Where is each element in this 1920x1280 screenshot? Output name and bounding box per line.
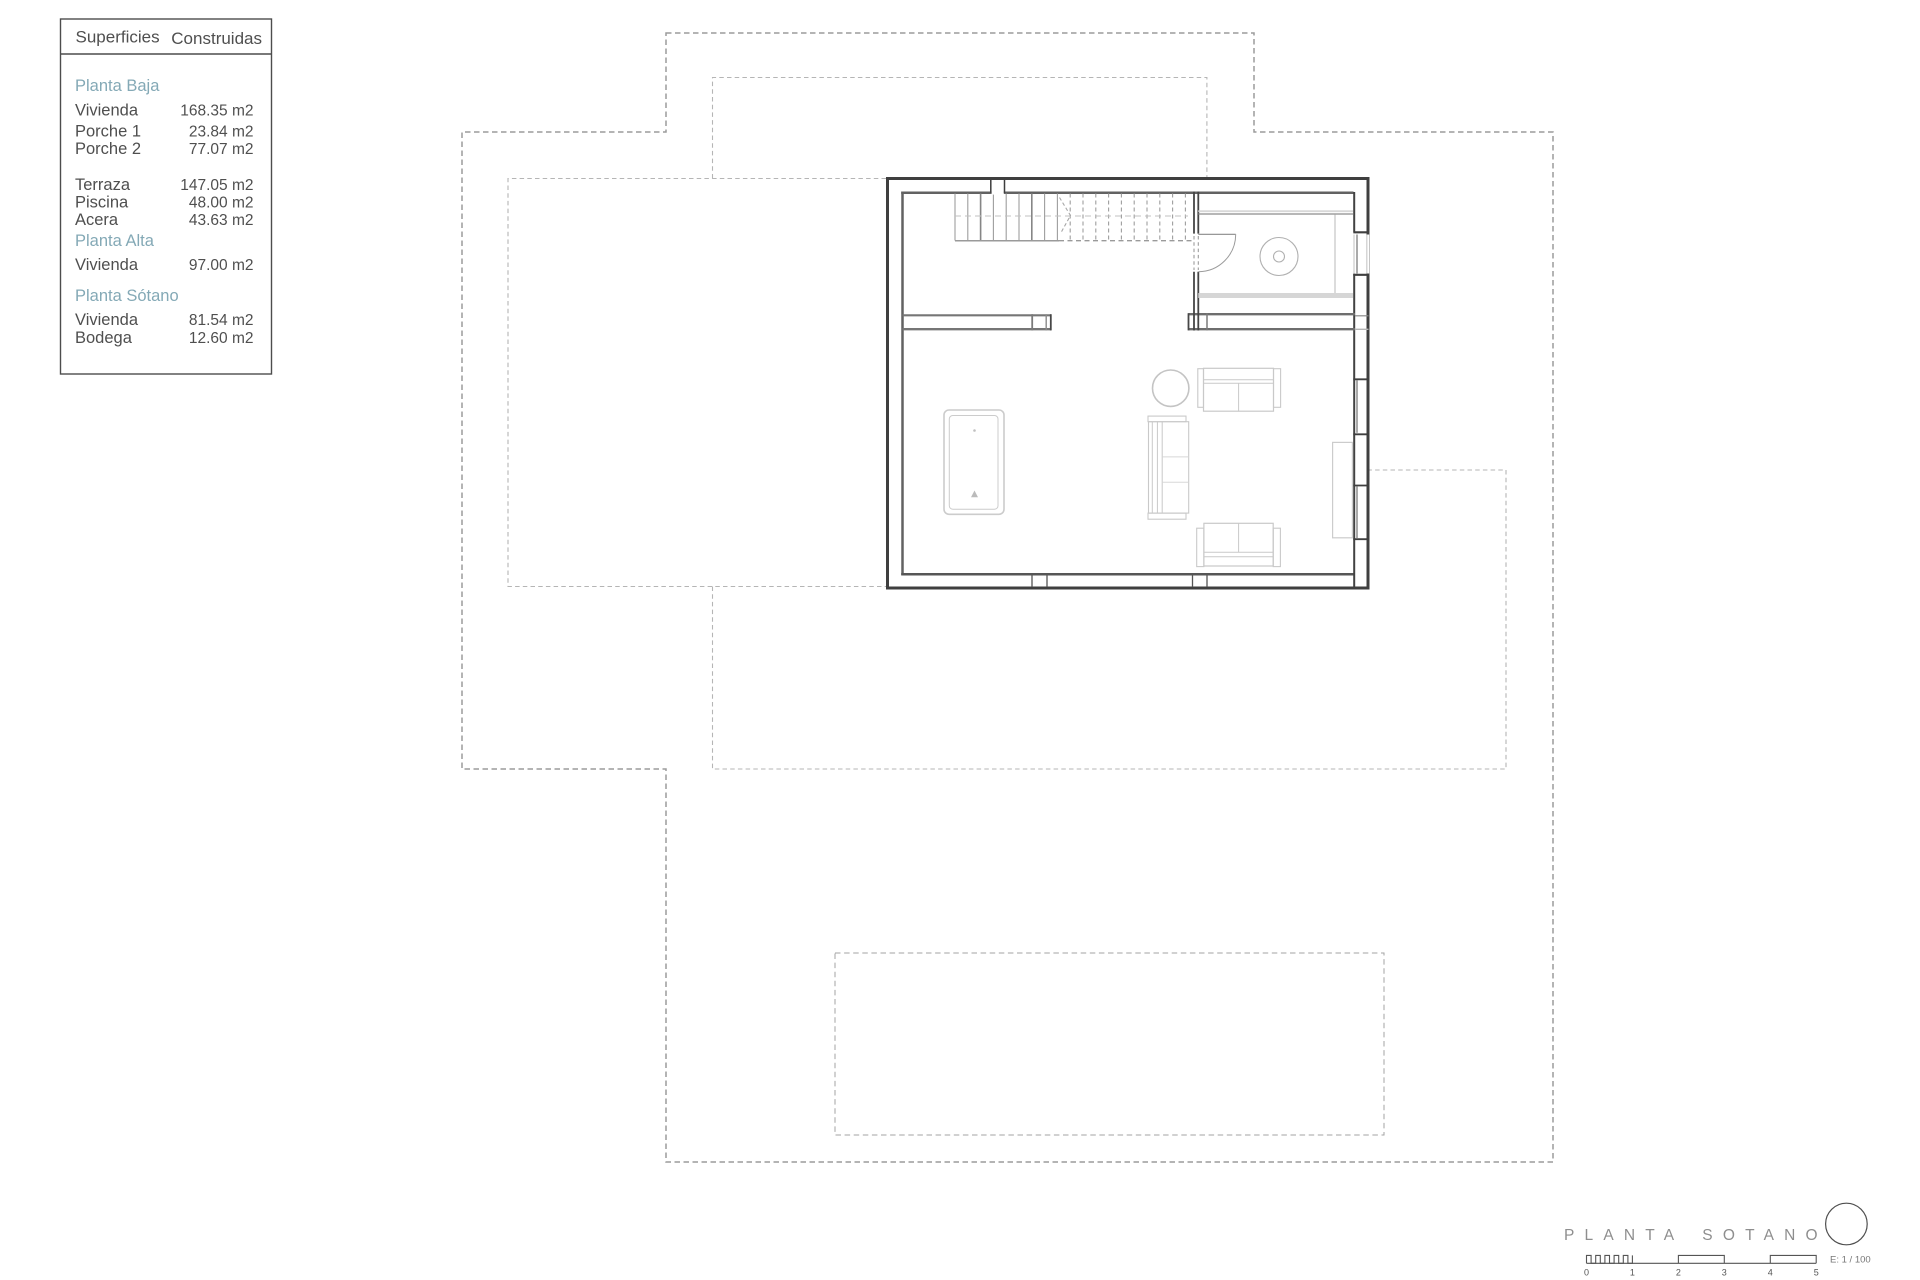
svg-text:81.54 m2: 81.54 m2 — [189, 312, 254, 329]
svg-text:Porche 2: Porche 2 — [75, 140, 141, 158]
svg-text:Piscina: Piscina — [75, 194, 129, 212]
svg-text:Vivienda: Vivienda — [75, 256, 139, 274]
svg-text:Vivienda: Vivienda — [75, 311, 139, 329]
svg-text:2: 2 — [1676, 1268, 1681, 1278]
svg-text:43.63 m2: 43.63 m2 — [189, 212, 254, 229]
svg-text:Planta Sótano: Planta Sótano — [75, 287, 179, 305]
svg-text:Superficies: Superficies — [76, 28, 160, 47]
svg-text:0: 0 — [1584, 1268, 1589, 1278]
svg-text:4: 4 — [1768, 1268, 1773, 1278]
svg-text:Terraza: Terraza — [75, 176, 131, 194]
svg-text:23.84 m2: 23.84 m2 — [189, 124, 254, 141]
svg-text:3: 3 — [1722, 1268, 1727, 1278]
svg-text:Vivienda: Vivienda — [75, 102, 139, 120]
svg-text:48.00 m2: 48.00 m2 — [189, 195, 254, 212]
svg-text:5: 5 — [1814, 1268, 1819, 1278]
svg-text:Planta Alta: Planta Alta — [75, 232, 155, 250]
svg-text:Acera: Acera — [75, 211, 119, 229]
svg-text:Construidas: Construidas — [171, 29, 262, 48]
svg-text:Porche 1: Porche 1 — [75, 123, 141, 141]
svg-text:Planta Baja: Planta Baja — [75, 77, 160, 95]
svg-text:77.07 m2: 77.07 m2 — [189, 141, 254, 158]
svg-text:168.35 m2: 168.35 m2 — [180, 103, 253, 120]
svg-text:PLANTA SOTANO: PLANTA SOTANO — [1564, 1227, 1828, 1244]
svg-text:1: 1 — [1630, 1268, 1635, 1278]
svg-text:12.60 m2: 12.60 m2 — [189, 330, 254, 347]
svg-text:Bodega: Bodega — [75, 329, 133, 347]
svg-text:147.05 m2: 147.05 m2 — [180, 177, 253, 194]
svg-text:97.00 m2: 97.00 m2 — [189, 257, 254, 274]
svg-text:E: 1 / 100: E: 1 / 100 — [1830, 1255, 1871, 1266]
